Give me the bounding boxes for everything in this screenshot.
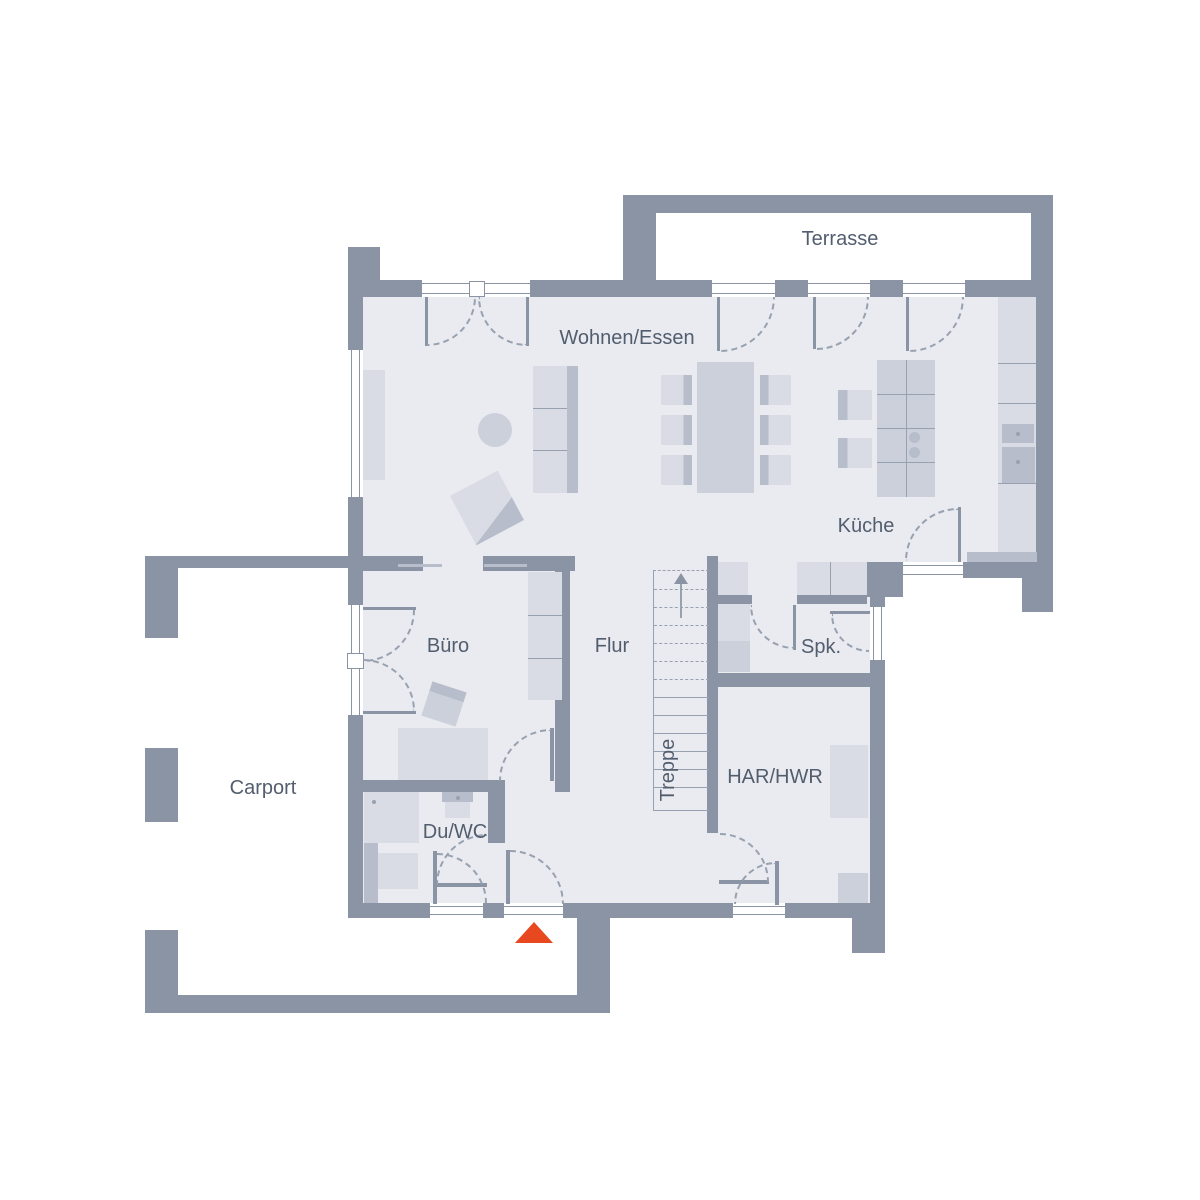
wall-spk-north bbox=[797, 595, 867, 604]
wall-carport-bottom bbox=[145, 995, 610, 1013]
dining-chair bbox=[661, 375, 692, 405]
counter-divider bbox=[998, 483, 1036, 484]
har-equipment bbox=[838, 873, 868, 903]
dining-chair bbox=[661, 415, 692, 445]
dining-chair bbox=[760, 455, 791, 485]
carport-pillar bbox=[145, 568, 178, 638]
wall-kitchen-corner bbox=[1022, 578, 1053, 612]
sofa bbox=[533, 366, 567, 493]
wall-top bbox=[775, 280, 808, 297]
window bbox=[870, 607, 885, 660]
room-label-flur: Flur bbox=[572, 634, 652, 658]
door-threshold-terrace-1 bbox=[712, 280, 775, 297]
island-grid bbox=[877, 428, 935, 429]
counter-divider bbox=[998, 363, 1036, 364]
wall-kitchen-south bbox=[963, 562, 1053, 578]
door-leaf bbox=[363, 711, 416, 714]
floor-plan: Terrasse Wohnen/Essen Küche Büro Flur Sp… bbox=[0, 0, 1200, 1200]
room-label-kueche: Küche bbox=[826, 514, 906, 538]
kitchen-cabinet bbox=[797, 562, 867, 595]
shelf-divider bbox=[528, 658, 562, 659]
cooktop-burner bbox=[923, 433, 932, 442]
sofa-back bbox=[567, 366, 578, 493]
wall-buero-south bbox=[362, 780, 505, 792]
room-label-terrasse: Terrasse bbox=[770, 227, 910, 251]
bath-sidewall bbox=[364, 843, 378, 903]
door-knob bbox=[469, 281, 485, 297]
wall-kitchen-doorjamb bbox=[867, 562, 903, 597]
sliding-door-track bbox=[484, 564, 527, 567]
wall-terrace-left bbox=[623, 195, 656, 280]
cooktop-burner bbox=[909, 432, 920, 443]
dining-chair bbox=[661, 455, 692, 485]
door-threshold-terrace-2 bbox=[808, 280, 870, 297]
room-label-buero: Büro bbox=[408, 634, 488, 658]
room-label-spk: Spk. bbox=[781, 635, 861, 659]
coffee-table bbox=[478, 413, 512, 447]
window bbox=[348, 350, 363, 497]
wall-bottom bbox=[563, 903, 733, 918]
sofa-divider bbox=[533, 408, 567, 409]
carport-pillar bbox=[145, 930, 178, 1005]
stair-arrow-head-icon bbox=[674, 573, 688, 584]
wall-bottom bbox=[348, 903, 430, 918]
bar-stool bbox=[838, 390, 872, 420]
wall-carport-top bbox=[145, 556, 348, 568]
shelf-divider bbox=[528, 615, 562, 616]
room-label-carport: Carport bbox=[203, 776, 323, 800]
room-label-har-hwr: HAR/HWR bbox=[695, 765, 855, 789]
cooktop-burner bbox=[923, 448, 932, 457]
sliding-door-track bbox=[398, 564, 442, 567]
carport-pillar bbox=[145, 748, 178, 822]
door-threshold-entrance bbox=[504, 903, 563, 918]
door-knob bbox=[347, 653, 364, 669]
wall-terrace-top bbox=[623, 195, 1053, 213]
door-threshold-terrace-3 bbox=[903, 280, 965, 297]
bar-stool bbox=[838, 438, 872, 468]
counter-divider bbox=[998, 403, 1036, 404]
pantry-shelf bbox=[718, 641, 750, 672]
entrance-marker-icon bbox=[515, 922, 553, 943]
office-shelf bbox=[528, 572, 562, 700]
wall-left bbox=[348, 497, 363, 605]
wall-top bbox=[530, 280, 712, 297]
vanity bbox=[378, 853, 418, 889]
door-leaf bbox=[958, 507, 961, 562]
pantry-shelf bbox=[718, 604, 750, 641]
dining-table bbox=[697, 362, 754, 493]
built-in-appliance bbox=[1002, 447, 1035, 483]
wall-stub-topleft bbox=[348, 247, 380, 280]
wall-top bbox=[965, 280, 1053, 297]
wall-har-north bbox=[707, 673, 870, 687]
sliding-door-panel bbox=[507, 557, 550, 562]
room-label-du-wc: Du/WC bbox=[395, 820, 515, 844]
wall-spk-north bbox=[718, 595, 752, 604]
wall-bottom bbox=[483, 903, 504, 918]
kitchen-cabinet bbox=[718, 562, 748, 595]
counter-end bbox=[967, 552, 1037, 562]
island-grid bbox=[877, 462, 935, 463]
desk bbox=[398, 728, 488, 780]
island-grid bbox=[877, 394, 935, 395]
stair-direction-arrow bbox=[680, 582, 682, 618]
door-threshold-har bbox=[733, 903, 785, 918]
room-label-treppe: Treppe bbox=[656, 720, 680, 820]
wall-right-lower bbox=[870, 660, 885, 918]
door-threshold-side bbox=[430, 903, 483, 918]
wall-kitchen-right bbox=[1036, 297, 1053, 578]
wall-left bbox=[348, 715, 363, 918]
toilet bbox=[445, 802, 470, 818]
wall-stub-bottomright bbox=[852, 918, 885, 953]
room-label-wohnen-essen: Wohnen/Essen bbox=[537, 326, 717, 350]
sideboard bbox=[363, 370, 385, 480]
wall-left bbox=[348, 280, 363, 350]
sofa-divider bbox=[533, 450, 567, 451]
door-threshold-kitchen bbox=[903, 562, 963, 578]
sliding-door-panel bbox=[379, 557, 423, 562]
wall-top bbox=[870, 280, 903, 297]
dining-chair bbox=[760, 375, 791, 405]
dining-chair bbox=[760, 415, 791, 445]
cooktop-burner bbox=[909, 447, 920, 458]
cabinet-divider bbox=[830, 562, 831, 595]
wall-entry-court bbox=[577, 918, 610, 995]
